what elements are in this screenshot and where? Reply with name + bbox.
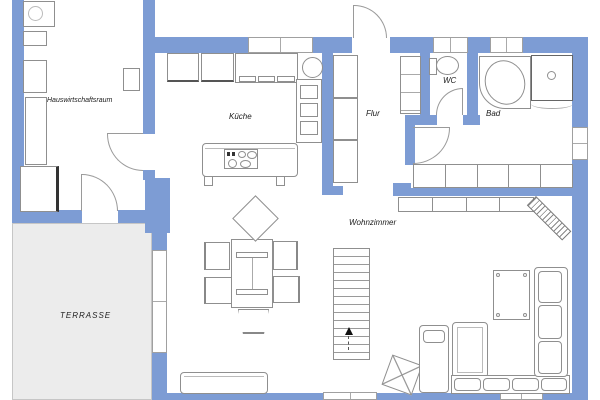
dining-table xyxy=(231,239,273,308)
beanbag xyxy=(381,354,422,395)
storage-box xyxy=(23,60,47,93)
cushion xyxy=(538,271,562,303)
drawer xyxy=(300,85,318,99)
table-leg xyxy=(496,273,500,277)
wardrobe xyxy=(333,98,358,140)
wall xyxy=(152,353,167,400)
table-detail xyxy=(236,289,268,295)
burner xyxy=(238,151,246,158)
washer-drum xyxy=(28,6,43,21)
refrigerator xyxy=(167,53,199,82)
room-label-living: Wohnzimmer xyxy=(349,218,396,227)
coffee-table xyxy=(493,270,530,320)
room-label-hall: Flur xyxy=(366,109,380,118)
table-leg xyxy=(496,313,500,317)
dining-chair xyxy=(204,242,230,270)
window xyxy=(248,37,313,53)
toilet xyxy=(436,56,459,75)
cabinet-door xyxy=(508,164,541,188)
lowboard-edge xyxy=(184,376,264,377)
wall xyxy=(420,40,430,125)
stairs xyxy=(333,248,370,360)
cushion xyxy=(538,305,562,339)
drawer xyxy=(258,76,275,82)
terrace-door-arc xyxy=(82,174,118,211)
burner xyxy=(240,160,251,168)
cabinet-door xyxy=(466,197,501,212)
entrance-door-arc xyxy=(354,5,387,38)
hall-shelf xyxy=(400,56,421,114)
cushion xyxy=(454,378,481,391)
cushion xyxy=(512,378,539,391)
cabinet-door xyxy=(477,164,510,188)
window xyxy=(572,127,588,160)
burner xyxy=(247,151,257,159)
stairs-direction-arrow xyxy=(345,327,353,335)
window xyxy=(433,37,468,53)
kitchen-sink xyxy=(302,57,323,78)
wall xyxy=(152,37,248,53)
washing-machine xyxy=(23,1,55,27)
room-label-terrace: TERRASSE xyxy=(60,311,111,320)
kitchen-counter xyxy=(235,53,298,83)
dining-chair xyxy=(273,276,300,303)
cabinet-door xyxy=(413,164,446,188)
window xyxy=(152,250,167,353)
drawer xyxy=(300,103,318,117)
radiator xyxy=(527,196,572,241)
cushion xyxy=(538,341,562,374)
floor-plan: Hauswirtschaftsraum Küche Flur WC Bad Wo… xyxy=(0,0,600,400)
wall xyxy=(322,37,333,190)
cushion xyxy=(457,327,483,373)
oven xyxy=(201,53,234,82)
sideboard xyxy=(413,164,573,188)
kitchen-island xyxy=(202,143,298,177)
wall xyxy=(463,115,480,125)
wall xyxy=(145,178,170,233)
freezer xyxy=(20,166,59,212)
island-foot xyxy=(204,176,213,186)
drawer xyxy=(239,76,256,82)
lowboard xyxy=(398,197,534,212)
room-label-utility: Hauswirtschaftsraum xyxy=(47,96,112,105)
room-label-kitchen: Küche xyxy=(229,112,252,121)
dining-chair xyxy=(238,309,269,334)
wall xyxy=(572,37,588,400)
burner xyxy=(228,159,237,168)
wall xyxy=(467,40,478,125)
cushion xyxy=(541,378,567,391)
pillow xyxy=(423,330,445,343)
dining-chair xyxy=(232,195,279,242)
corner-bathtub xyxy=(479,56,531,109)
cabinet-door xyxy=(432,197,467,212)
tv-lowboard xyxy=(180,372,268,394)
sofa-seats xyxy=(451,375,570,394)
sofa-chaise xyxy=(452,322,488,378)
table-detail xyxy=(252,258,253,289)
cushion xyxy=(483,378,510,391)
window xyxy=(490,37,523,53)
cooktop xyxy=(224,149,258,169)
window xyxy=(323,392,377,400)
sofa-side xyxy=(534,267,568,377)
cooktop-knob xyxy=(227,152,230,156)
drawer xyxy=(277,76,295,82)
wall xyxy=(393,188,575,196)
storage-cabinet xyxy=(25,97,47,165)
table-leg xyxy=(523,273,527,277)
wall xyxy=(143,170,155,180)
chaise-longue xyxy=(419,325,449,393)
shower-curtain xyxy=(531,99,573,109)
dining-chair xyxy=(273,241,298,270)
bathtub-basin xyxy=(479,55,532,111)
kitchen-door-arc xyxy=(107,134,143,171)
cooktop-knob xyxy=(232,152,235,156)
dining-chair xyxy=(204,277,232,304)
room-label-bath: Bad xyxy=(486,109,500,118)
wall xyxy=(143,0,155,134)
storage-box xyxy=(23,31,47,46)
shower-drain xyxy=(547,71,556,80)
shower xyxy=(531,55,573,101)
wc-door-arc xyxy=(436,88,463,115)
stairs-direction-line xyxy=(348,336,350,350)
kitchen-counter xyxy=(296,79,322,143)
wall-unit xyxy=(123,68,140,91)
wall xyxy=(523,37,588,53)
cabinet-door xyxy=(540,164,573,188)
island-foot xyxy=(276,176,285,186)
wardrobe xyxy=(333,55,358,98)
wall xyxy=(322,186,343,195)
bath-door-arc xyxy=(413,128,450,164)
cabinet-door xyxy=(398,197,433,212)
drawer xyxy=(300,121,318,135)
cabinet-door xyxy=(445,164,478,188)
wardrobe xyxy=(333,140,358,183)
room-label-wc: WC xyxy=(443,76,456,85)
table-leg xyxy=(523,313,527,317)
